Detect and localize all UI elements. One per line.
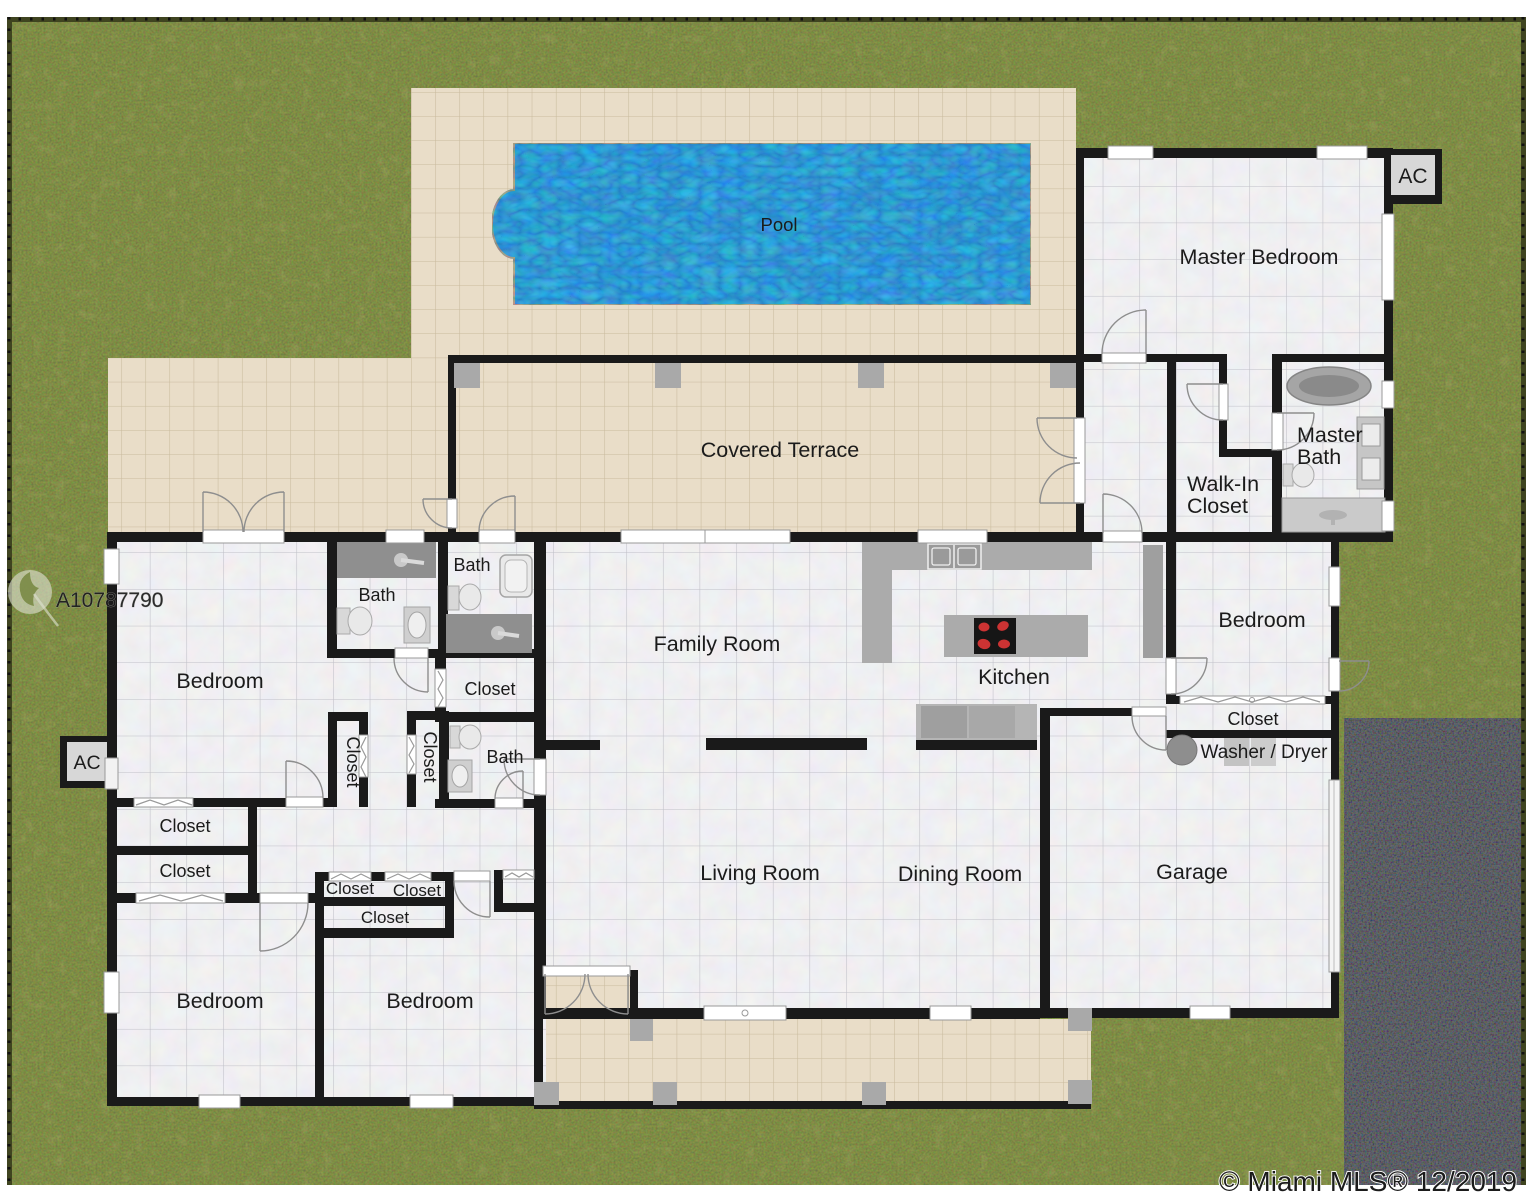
svg-text:AC: AC xyxy=(1398,165,1427,188)
svg-text:Bath: Bath xyxy=(1297,445,1341,469)
svg-text:Bath: Bath xyxy=(453,555,490,575)
svg-text:Master: Master xyxy=(1297,423,1363,447)
svg-text:Closet: Closet xyxy=(159,861,210,881)
svg-text:Closet: Closet xyxy=(159,816,210,836)
svg-text:Closet: Closet xyxy=(464,679,515,699)
svg-text:Washer / Dryer: Washer / Dryer xyxy=(1200,742,1328,763)
svg-text:Bedroom: Bedroom xyxy=(176,989,263,1013)
svg-text:Living Room: Living Room xyxy=(700,861,820,885)
svg-text:Closet: Closet xyxy=(361,908,409,927)
svg-text:Bedroom: Bedroom xyxy=(176,669,263,693)
svg-text:Bath: Bath xyxy=(358,585,395,605)
svg-text:Closet: Closet xyxy=(393,881,441,900)
svg-text:Garage: Garage xyxy=(1156,860,1228,884)
svg-text:Bedroom: Bedroom xyxy=(1218,608,1305,632)
svg-text:Kitchen: Kitchen xyxy=(978,665,1050,689)
svg-text:Covered Terrace: Covered Terrace xyxy=(701,438,860,462)
svg-text:Bath: Bath xyxy=(486,747,523,767)
svg-text:© Miami MLS® 12/2019: © Miami MLS® 12/2019 xyxy=(1219,1166,1517,1197)
svg-text:Closet: Closet xyxy=(1227,709,1278,729)
svg-text:Family Room: Family Room xyxy=(654,632,781,656)
svg-text:AC: AC xyxy=(73,752,100,774)
svg-text:Bedroom: Bedroom xyxy=(386,989,473,1013)
svg-text:Pool: Pool xyxy=(760,214,797,235)
svg-text:Closet: Closet xyxy=(326,879,374,898)
svg-text:Closet: Closet xyxy=(420,731,440,782)
svg-text:Closet: Closet xyxy=(1187,494,1248,518)
svg-text:Dining Room: Dining Room xyxy=(898,862,1022,886)
svg-text:A10787790: A10787790 xyxy=(56,589,163,612)
svg-text:Closet: Closet xyxy=(343,736,363,787)
svg-text:Master Bedroom: Master Bedroom xyxy=(1180,245,1339,269)
svg-text:Walk-In: Walk-In xyxy=(1187,472,1259,496)
